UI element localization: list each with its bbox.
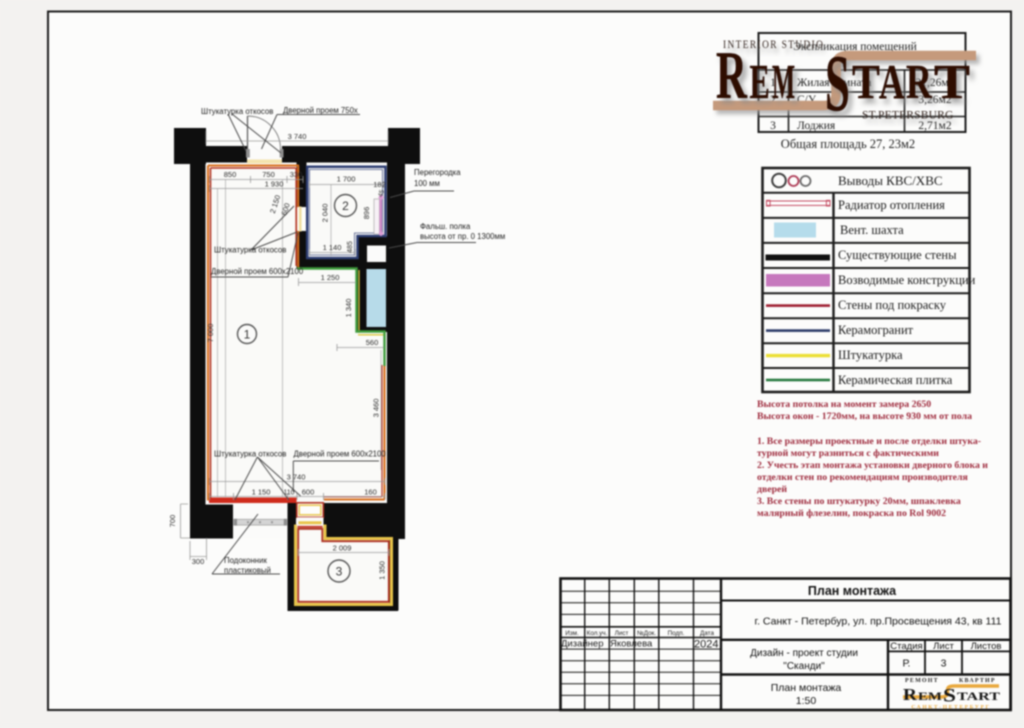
svg-text:Стены под покраску: Стены под покраску (838, 298, 947, 312)
svg-text:485: 485 (347, 241, 354, 253)
svg-text:Р.: Р. (903, 658, 911, 670)
svg-text:1 140: 1 140 (323, 243, 342, 252)
svg-text:План монтажа: План монтажа (808, 584, 897, 598)
svg-text:2024: 2024 (694, 639, 718, 651)
svg-text:750: 750 (262, 170, 275, 179)
svg-text:дверей: дверей (757, 484, 787, 495)
svg-text:1 340: 1 340 (344, 299, 353, 318)
svg-text:3. Все стены по штукатурку 20м: 3. Все стены по штукатурку 20мм, шпаклев… (757, 496, 961, 507)
svg-text:№Док.: №Док. (637, 630, 656, 637)
svg-text:1. Все размеры проектные и пос: 1. Все размеры проектные и после отделки… (757, 436, 981, 447)
svg-text:3: 3 (336, 565, 343, 579)
svg-text:турной могут разниться с факти: турной могут разниться с фактическими (757, 448, 939, 459)
svg-text:1:50: 1:50 (796, 695, 817, 707)
svg-text:Штукатурка откосов: Штукатурка откосов (214, 450, 286, 459)
svg-text:A: A (879, 56, 905, 110)
svg-text:Выводы КВС/ХВС: Выводы КВС/ХВС (838, 173, 943, 188)
svg-text:Возводимые конструкции: Возводимые конструкции (838, 273, 976, 287)
svg-text:1 930: 1 930 (265, 180, 284, 189)
svg-text:ST.PETERSBURG: ST.PETERSBURG (862, 110, 954, 122)
svg-text:План монтажа: План монтажа (771, 682, 842, 694)
svg-text:3 460: 3 460 (372, 399, 381, 418)
svg-text:Дата: Дата (700, 630, 714, 637)
svg-text:Изм.: Изм. (565, 630, 579, 637)
svg-text:1 700: 1 700 (337, 175, 356, 184)
svg-text:182: 182 (373, 180, 386, 189)
svg-text:560: 560 (366, 338, 379, 347)
svg-text:КВАРТИР: КВАРТИР (959, 678, 996, 684)
svg-text:Перегородка: Перегородка (414, 168, 461, 177)
svg-text:M: M (772, 55, 795, 109)
svg-text:Вент. шахта: Вент. шахта (840, 223, 904, 237)
svg-text:850: 850 (224, 170, 237, 179)
svg-text:Подоконник: Подоконник (224, 556, 267, 565)
svg-text:"Сканди": "Сканди" (783, 661, 825, 672)
svg-text:2,71м2: 2,71м2 (918, 120, 951, 132)
svg-text:Керамогранит: Керамогранит (838, 323, 914, 337)
svg-text:Дизайн - проект студии: Дизайн - проект студии (750, 648, 858, 659)
svg-text:100 мм: 100 мм (414, 179, 440, 188)
svg-text:Дверной проем 750х: Дверной проем 750х (283, 106, 358, 115)
svg-text:R: R (716, 38, 748, 113)
svg-text:7 000: 7 000 (206, 324, 215, 343)
svg-text:2 009: 2 009 (333, 544, 352, 553)
svg-text:EM: EM (918, 689, 942, 703)
svg-text:3: 3 (941, 658, 947, 670)
svg-text:Керамическая плитка: Керамическая плитка (838, 373, 953, 387)
svg-text:R: R (906, 56, 933, 110)
svg-text:Общая площадь 27, 23м2: Общая площадь 27, 23м2 (781, 137, 915, 151)
svg-text:T: T (934, 55, 970, 109)
svg-text:1 250: 1 250 (321, 273, 340, 282)
svg-text:Стадия: Стадия (890, 641, 922, 652)
svg-text:110: 110 (283, 490, 294, 497)
svg-text:отделки стен по рекомендациям: отделки стен по рекомендациям производит… (757, 472, 969, 483)
svg-text:Радиатор отопления: Радиатор отопления (838, 198, 945, 212)
svg-text:T: T (852, 54, 880, 109)
svg-text:600: 600 (302, 488, 315, 497)
svg-text:Штукатурка: Штукатурка (838, 348, 903, 362)
svg-text:Высота окон - 1720мм, на высот: Высота окон - 1720мм, на высоте 930 мм о… (757, 411, 972, 422)
svg-text:Лист: Лист (933, 641, 954, 652)
svg-text:Дверной проем 600х2100: Дверной проем 600х2100 (294, 450, 387, 459)
svg-text:3 740: 3 740 (287, 473, 306, 482)
svg-text:3 740: 3 740 (288, 132, 307, 141)
svg-text:1: 1 (244, 328, 251, 342)
svg-text:300: 300 (192, 557, 205, 566)
svg-text:160: 160 (364, 488, 377, 497)
svg-text:Яковлева: Яковлева (610, 639, 653, 650)
svg-text:TART: TART (957, 689, 1000, 703)
svg-text:малярный флезелин, покраска по: малярный флезелин, покраска по Rol 9002 (757, 508, 946, 519)
svg-text:S: S (825, 40, 850, 129)
svg-text:Листов: Листов (971, 641, 1002, 652)
svg-text:2 040: 2 040 (321, 204, 330, 223)
svg-text:Дизайнер: Дизайнер (561, 639, 604, 650)
svg-text:РЕМОНТ: РЕМОНТ (905, 678, 939, 684)
svg-text:пластиковый: пластиковый (224, 566, 271, 575)
svg-text:3: 3 (770, 120, 776, 132)
svg-text:высота от пр. 0 1300мм: высота от пр. 0 1300мм (420, 232, 505, 241)
svg-text:E: E (750, 55, 770, 109)
svg-text:1 350: 1 350 (378, 561, 387, 580)
svg-text:Подп.: Подп. (668, 630, 685, 637)
svg-text:2: 2 (342, 199, 349, 213)
svg-text:Штукатурка откосов: Штукатурка откосов (214, 246, 286, 255)
svg-text:Лист: Лист (615, 630, 629, 637)
svg-text:Высота потолка на момент замер: Высота потолка на момент замера 2650 (757, 399, 931, 410)
svg-text:Штукатурка откосов: Штукатурка откосов (201, 107, 273, 116)
svg-text:САНКТ-ПЕТЕРБУРГ: САНКТ-ПЕТЕРБУРГ (911, 705, 990, 711)
svg-text:700: 700 (168, 515, 177, 528)
svg-text:1 150: 1 150 (252, 488, 271, 497)
svg-text:2. Учесть этап монтажа установ: 2. Учесть этап монтажа установки дверног… (757, 460, 988, 471)
svg-text:г. Санкт - Петербур, ул. пр.Пр: г. Санкт - Петербур, ул. пр.Просвещения … (755, 616, 1002, 628)
svg-text:S: S (943, 686, 956, 707)
svg-text:Дверной проем 600х2100: Дверной проем 600х2100 (211, 267, 304, 276)
svg-text:Существующие стены: Существующие стены (838, 248, 957, 262)
svg-text:Фальш. полка: Фальш. полка (420, 222, 471, 231)
svg-text:330: 330 (290, 170, 303, 179)
svg-text:896: 896 (362, 207, 371, 220)
svg-text:R: R (903, 685, 918, 704)
svg-text:Кол.уч.: Кол.уч. (587, 630, 608, 637)
